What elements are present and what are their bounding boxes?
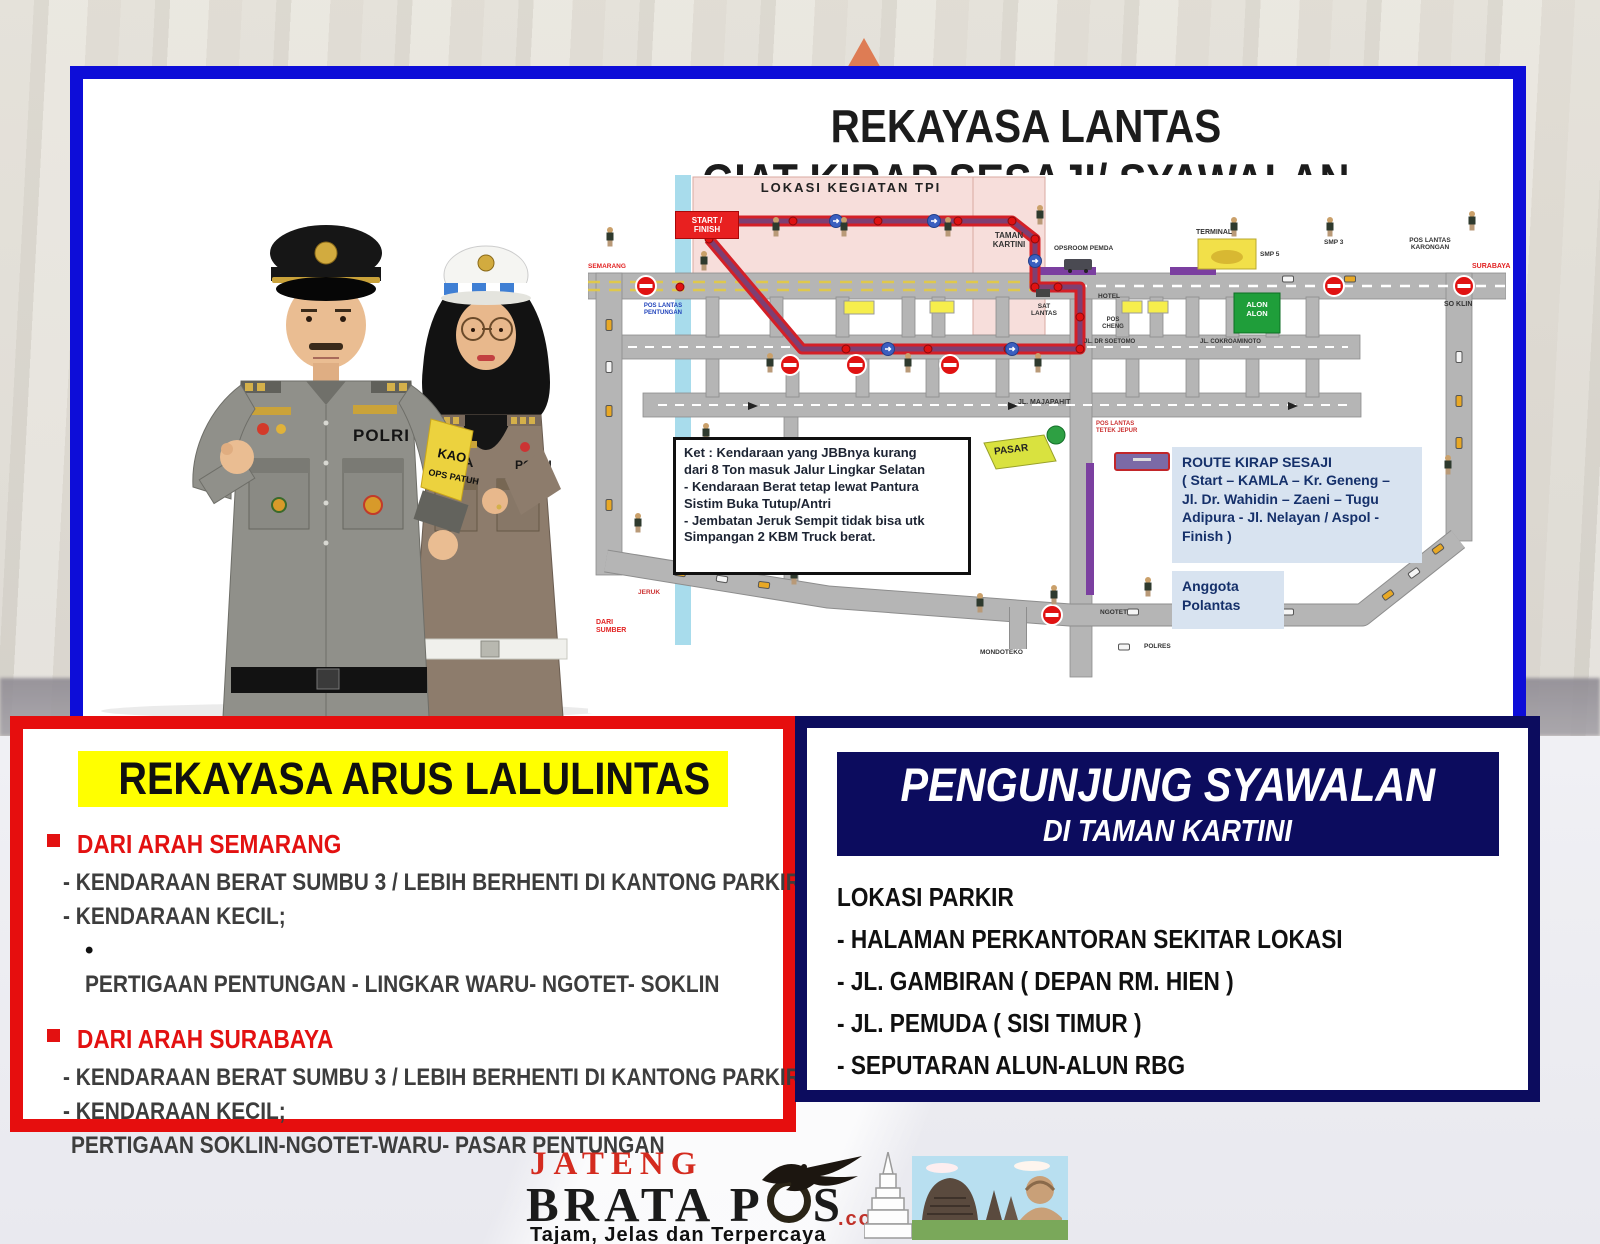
section-surabaya-heading: DARI ARAH SURABAYA [47, 1024, 783, 1055]
map-label-smp3: SMP 3 [1324, 239, 1343, 246]
parking-list: LOKASI PARKIR - HALAMAN PERKANTORAN SEKI… [837, 876, 1528, 1086]
left-panel-title: REKAYASA ARUS LALULINTAS [118, 751, 710, 807]
map-label-so-klin: SO KLIN [1444, 301, 1472, 309]
traffic-map: LOKASI KEGIATAN TPI START / FINISH TAMAN… [588, 175, 1506, 713]
map-label-pos-cheng: POS CHENG [1096, 317, 1130, 331]
police-officers-photo: MITHA POLRI [91, 167, 621, 717]
map-label-hotel: HOTEL [1098, 293, 1120, 300]
map-label-mondoteko: MONDOTEKO [980, 649, 1023, 656]
map-label-terminal: TERMINAL [1196, 229, 1232, 237]
map-label-pos-karongan: POS LANTAS KARONGAN [1394, 237, 1466, 252]
legend-officer-label: Anggota Polantas [1172, 571, 1284, 629]
surabaya-line1: - KENDARAAN BERAT SUMBU 3 / LEBIH BERHEN… [63, 1061, 783, 1095]
map-label-smp5: SMP 5 [1260, 251, 1279, 258]
sat-lantas-icon [1036, 289, 1050, 297]
start-finish-sign: START / FINISH [675, 211, 739, 239]
right-header-line1: PENGUNJUNG SYAWALAN [900, 756, 1435, 814]
parking-item: - JL. PEMUDA ( SISI TIMUR ) [837, 1002, 1528, 1044]
parking-item: - JL. GAMBIRAN ( DEPAN RM. HIEN ) [837, 960, 1528, 1002]
map-label-sat-lantas: SAT LANTAS [1024, 303, 1064, 318]
map-label-jl-majapahit: JL. MAJAPAHIT [1018, 399, 1070, 407]
map-label-pos-tetek-jepur: POS LANTAS TETEK JEPUR [1096, 421, 1160, 435]
semarang-line2: - KENDARAAN KECIL; [63, 900, 783, 934]
parking-item: - HALAMAN PERKANTORAN SEKITAR LOKASI [837, 918, 1528, 960]
borobudur-image [912, 1156, 1068, 1240]
semarang-line1: - KENDARAAN BERAT SUMBU 3 / LEBIH BERHEN… [63, 866, 783, 900]
right-header-line2: DI TAMAN KARTINI [1043, 814, 1292, 848]
surabaya-line2: - KENDARAAN KECIL; [63, 1095, 783, 1129]
parking-list-title: LOKASI PARKIR [837, 876, 1528, 918]
route-description-box: ROUTE KIRAP SESAJI ( Start – KAMLA – Kr.… [1172, 447, 1422, 563]
right-panel-header: PENGUNJUNG SYAWALAN DI TAMAN KARTINI [837, 752, 1499, 856]
map-label-alun-alun: ALON ALON [1234, 301, 1280, 318]
traffic-flow-panel: REKAYASA ARUS LALULINTAS DARI ARAH SEMAR… [10, 716, 796, 1132]
top-panel: REKAYASA LANTAS GIAT KIRAP SESAJI/ SYAWA… [70, 66, 1526, 732]
monument-icon [864, 1152, 912, 1240]
map-label-semarang: SEMARANG [588, 263, 626, 270]
eagle-icon [758, 1154, 868, 1196]
map-label-tpi: LOKASI KEGIATAN TPI [693, 181, 1009, 196]
male-polri-tag: POLRI [353, 426, 410, 445]
logo-tagline: Tajam, Jelas dan Terpercaya [530, 1224, 826, 1244]
left-panel-title-bar: REKAYASA ARUS LALULINTAS [78, 751, 728, 807]
map-label-surabaya: SURABAYA [1472, 263, 1510, 271]
route-legend-chip [1114, 452, 1170, 471]
map-label-taman-kartini: TAMAN KARTINI [976, 231, 1042, 249]
map-label-jeruk: JERUK [638, 589, 660, 596]
semarang-line3: PERTIGAAN PENTUNGAN - LINGKAR WARU- NGOT… [85, 934, 783, 1002]
map-label-pos-pentungan: POS LANTAS PENTUNGAN [630, 303, 696, 317]
map-label-ngotet: NGOTET [1100, 609, 1127, 616]
publisher-logo: JATENG BRATA PS .com Tajam, Jelas dan Te… [520, 1146, 1068, 1242]
polres-car-icon [1119, 644, 1130, 650]
map-label-jl-dr-soetomo: JL. DR SOETOMO [1084, 339, 1135, 346]
map-label-dari-sumber: DARI SUMBER [596, 619, 648, 635]
section-semarang-heading: DARI ARAH SEMARANG [47, 829, 783, 860]
bus-icon [1064, 259, 1092, 270]
parking-item: - SEPUTARAN ALUN-ALUN RBG [837, 1044, 1528, 1086]
map-label-opsroom: OPSROOM PEMDA [1054, 245, 1113, 252]
map-label-jl-cokroaminoto: JL. COKROAMINOTO [1200, 339, 1261, 346]
map-label-polres: POLRES [1144, 643, 1171, 650]
traffic-infographic-poster: REKAYASA LANTAS GIAT KIRAP SESAJI/ SYAWA… [0, 0, 1600, 1244]
map-note-box: Ket : Kendaraan yang JBBnya kurang dari … [673, 437, 971, 575]
title-line1: REKAYASA LANTAS [830, 99, 1221, 153]
visitors-panel: PENGUNJUNG SYAWALAN DI TAMAN KARTINI LOK… [795, 716, 1540, 1102]
